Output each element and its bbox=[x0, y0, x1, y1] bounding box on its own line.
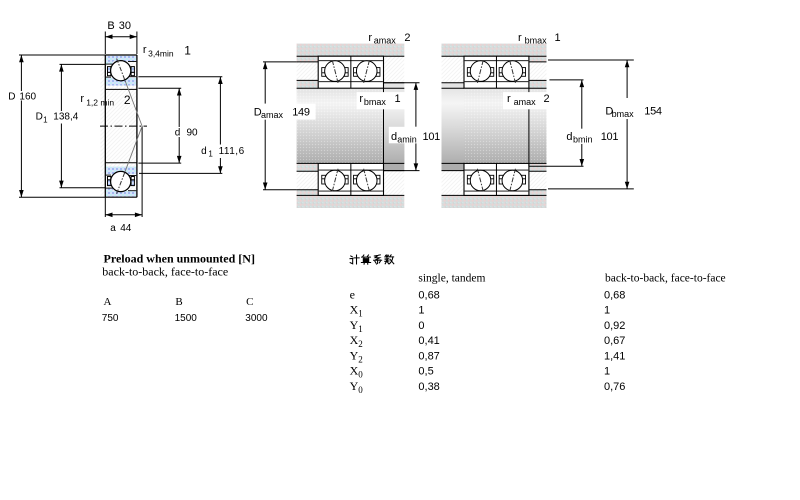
svg-text:r: r bbox=[507, 93, 511, 105]
svg-text:2: 2 bbox=[358, 354, 363, 364]
svg-text:D: D bbox=[36, 111, 43, 122]
svg-text:1: 1 bbox=[208, 150, 213, 159]
svg-text:1: 1 bbox=[418, 305, 424, 317]
svg-text:0,5: 0,5 bbox=[418, 366, 433, 378]
svg-text:amax: amax bbox=[374, 36, 397, 46]
svg-text:101: 101 bbox=[601, 131, 619, 143]
svg-text:101: 101 bbox=[423, 131, 441, 143]
svg-text:d: d bbox=[391, 131, 397, 143]
svg-text:amax: amax bbox=[514, 97, 537, 107]
svg-text:0: 0 bbox=[358, 385, 363, 395]
svg-text:2: 2 bbox=[124, 93, 131, 107]
svg-text:0,92: 0,92 bbox=[604, 320, 625, 332]
svg-text:160: 160 bbox=[19, 91, 36, 102]
svg-text:2: 2 bbox=[404, 32, 410, 44]
svg-text:amax: amax bbox=[261, 110, 284, 120]
svg-text:1: 1 bbox=[604, 366, 610, 378]
svg-text:111,6: 111,6 bbox=[219, 146, 245, 157]
svg-text:a: a bbox=[110, 223, 116, 234]
svg-text:r: r bbox=[359, 93, 363, 105]
svg-text:154: 154 bbox=[644, 106, 662, 118]
svg-text:r: r bbox=[368, 32, 372, 44]
svg-text:30: 30 bbox=[119, 20, 131, 32]
svg-text:back-to-back, face-to-face: back-to-back, face-to-face bbox=[102, 265, 228, 279]
svg-text:B: B bbox=[175, 296, 182, 308]
svg-text:3000: 3000 bbox=[245, 313, 268, 324]
svg-text:d: d bbox=[175, 128, 181, 139]
svg-text:1500: 1500 bbox=[175, 313, 198, 324]
svg-text:back-to-back, face-to-face: back-to-back, face-to-face bbox=[605, 273, 726, 285]
svg-text:A: A bbox=[104, 296, 112, 308]
svg-text:1: 1 bbox=[358, 324, 363, 334]
svg-text:bmax: bmax bbox=[525, 36, 548, 46]
svg-text:bmax: bmax bbox=[612, 109, 635, 119]
svg-text:0,76: 0,76 bbox=[604, 381, 625, 393]
svg-text:1,41: 1,41 bbox=[604, 350, 625, 362]
svg-text:amin: amin bbox=[397, 134, 417, 144]
svg-text:1: 1 bbox=[395, 93, 401, 105]
svg-text:3,4min: 3,4min bbox=[148, 48, 174, 58]
svg-text:750: 750 bbox=[102, 313, 119, 324]
svg-text:138,4: 138,4 bbox=[53, 111, 78, 122]
svg-text:r: r bbox=[143, 44, 147, 56]
svg-text:0,67: 0,67 bbox=[604, 335, 625, 347]
svg-text:2: 2 bbox=[544, 93, 550, 105]
svg-text:B: B bbox=[107, 20, 114, 32]
svg-text:44: 44 bbox=[120, 223, 132, 234]
svg-text:1: 1 bbox=[358, 309, 363, 319]
svg-text:bmin: bmin bbox=[573, 134, 593, 144]
svg-text:d: d bbox=[201, 146, 207, 157]
svg-text:1: 1 bbox=[555, 32, 561, 44]
svg-text:bmax: bmax bbox=[364, 97, 387, 107]
svg-text:0,68: 0,68 bbox=[604, 289, 625, 301]
svg-text:D: D bbox=[8, 91, 15, 102]
svg-text:1: 1 bbox=[184, 43, 191, 57]
svg-text:1: 1 bbox=[43, 116, 48, 125]
svg-text:149: 149 bbox=[292, 107, 310, 119]
svg-text:0,68: 0,68 bbox=[418, 289, 439, 301]
svg-text:0,38: 0,38 bbox=[418, 381, 439, 393]
svg-text:1: 1 bbox=[604, 305, 610, 317]
svg-text:90: 90 bbox=[187, 128, 199, 139]
svg-text:single, tandem: single, tandem bbox=[418, 273, 485, 285]
svg-text:d: d bbox=[566, 131, 572, 143]
svg-text:0,41: 0,41 bbox=[418, 335, 439, 347]
svg-text:0,87: 0,87 bbox=[418, 350, 439, 362]
svg-text:C: C bbox=[246, 296, 253, 308]
svg-text:Preload when unmounted [N]: Preload when unmounted [N] bbox=[104, 251, 255, 265]
svg-text:r: r bbox=[518, 32, 522, 44]
svg-text:1,2 min: 1,2 min bbox=[86, 98, 114, 108]
svg-text:r: r bbox=[80, 93, 84, 105]
svg-text:0: 0 bbox=[418, 320, 424, 332]
svg-text:e: e bbox=[350, 287, 355, 301]
svg-text:0: 0 bbox=[358, 370, 363, 380]
svg-text:2: 2 bbox=[358, 339, 363, 349]
